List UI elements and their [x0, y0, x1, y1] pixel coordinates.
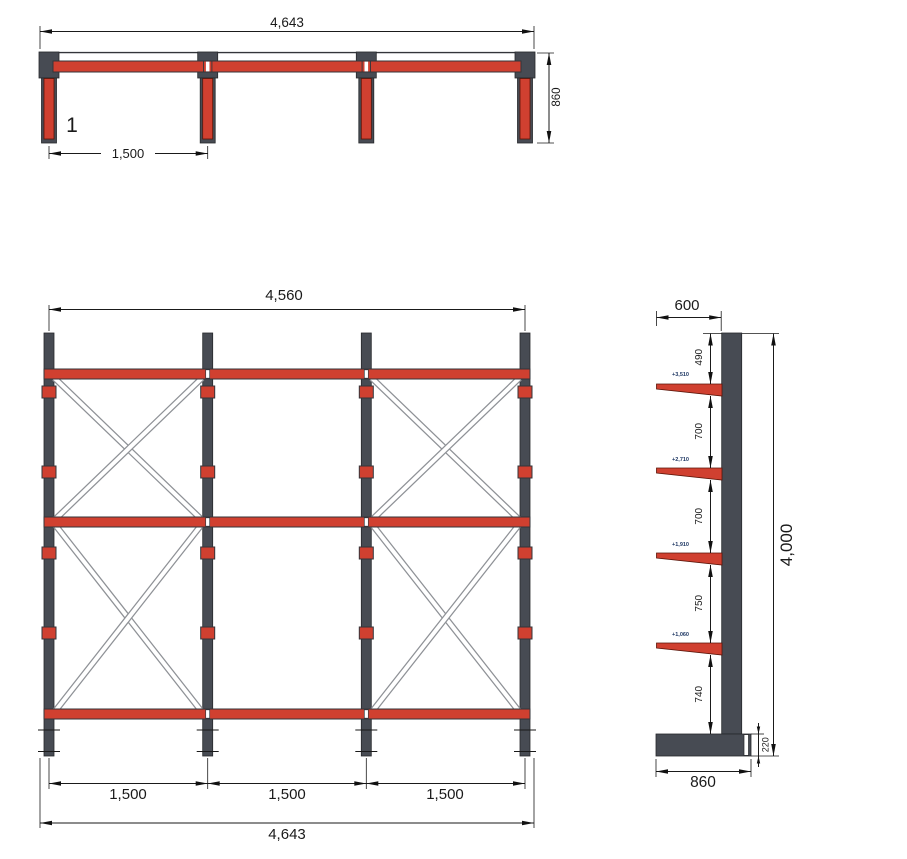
arm-level-label-4: +1,060 [659, 633, 689, 641]
side-arm-length-label: 600 [657, 298, 717, 314]
cross-brace-bay-1 [55, 378, 203, 712]
dim-front-frame-width [49, 305, 525, 331]
front-bay2-label: 1,500 [257, 787, 317, 803]
side-arm [657, 553, 723, 565]
rack-drawing-canvas: 4,643 1,500 860 1 4,560 1,500 1,500 1,50… [0, 0, 907, 859]
plan-view [39, 26, 554, 159]
front-beam-bottom [44, 709, 530, 719]
side-base-joint [744, 735, 749, 756]
side-spacing-label-740: 740 [695, 672, 706, 716]
side-base-height-label: 220 [761, 724, 770, 764]
dim-front-bays [49, 758, 525, 789]
front-bay1-label: 1,500 [98, 787, 158, 803]
side-base [656, 734, 751, 756]
plan-arm [44, 79, 54, 140]
drawing-layer [0, 0, 907, 859]
side-base-depth-label: 860 [673, 775, 733, 791]
plan-overall-width-label: 4,643 [247, 16, 327, 30]
front-bay3-label: 1,500 [415, 787, 475, 803]
plan-top-beam [53, 61, 521, 72]
plan-arm [203, 79, 213, 140]
cross-brace-bay-3 [372, 378, 520, 712]
plan-depth-label: 860 [551, 77, 563, 117]
base-ticks [38, 730, 536, 752]
arm-level-label-3: +1,910 [659, 543, 689, 551]
side-spacing-label-700b: 700 [695, 494, 706, 538]
side-overall-height-label: 4,000 [778, 515, 796, 575]
side-arm [657, 384, 723, 396]
side-spacing-label-700a: 700 [695, 409, 706, 453]
front-beam-top [44, 369, 530, 379]
side-spacing-label-750: 750 [695, 581, 706, 625]
side-spacing-label-490: 490 [695, 335, 706, 379]
plan-item-number: 1 [62, 115, 82, 137]
plan-bay-width-label: 1,500 [101, 147, 155, 161]
front-beam-middle [44, 517, 530, 527]
side-arm [657, 468, 723, 480]
plan-arm [520, 79, 530, 140]
dim-side-arm-length [657, 311, 722, 331]
front-frame-width-label: 4,560 [244, 288, 324, 304]
front-beam-joints [206, 370, 369, 718]
dim-side-overall-height [742, 334, 779, 757]
side-column [722, 333, 742, 734]
side-arm [657, 643, 723, 655]
arm-level-label-1: +3,510 [659, 373, 689, 381]
plan-arm [361, 79, 371, 140]
arm-level-label-2: +2,710 [659, 458, 689, 466]
front-overall-width-label: 4,643 [247, 827, 327, 843]
front-view [38, 305, 536, 828]
